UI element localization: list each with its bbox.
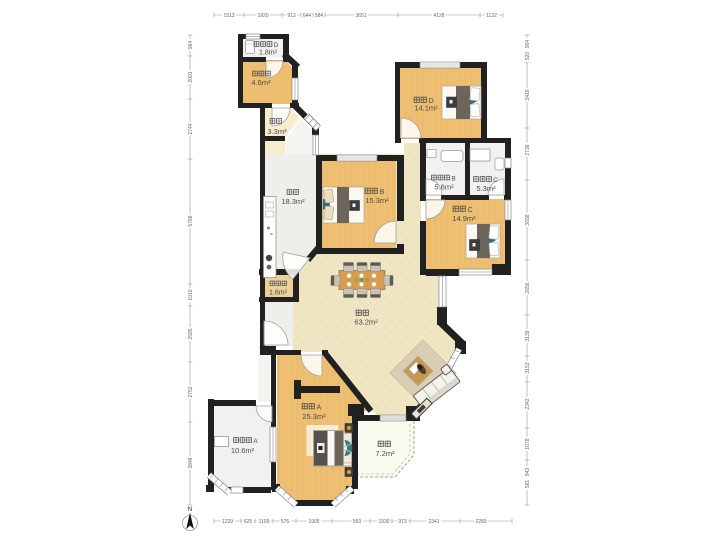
- svg-text:B: B: [451, 175, 455, 182]
- svg-text:563: 563: [353, 519, 362, 525]
- svg-text:584: 584: [315, 13, 324, 19]
- svg-text:1109: 1109: [259, 519, 270, 525]
- svg-text:5.3m²: 5.3m²: [476, 184, 496, 193]
- svg-text:964: 964: [188, 41, 194, 50]
- svg-text:2656: 2656: [525, 282, 531, 293]
- svg-text:4128: 4128: [433, 13, 444, 19]
- svg-text:576: 576: [281, 519, 290, 525]
- svg-text:3419: 3419: [525, 89, 531, 100]
- svg-text:10.6m²: 10.6m²: [231, 446, 255, 455]
- svg-text:5788: 5788: [188, 215, 194, 226]
- svg-text:5.6m²: 5.6m²: [434, 183, 454, 192]
- svg-text:3153: 3153: [525, 362, 531, 373]
- svg-text:N: N: [188, 506, 193, 513]
- svg-text:2744: 2744: [188, 123, 194, 134]
- svg-text:C: C: [467, 207, 472, 214]
- svg-text:913: 913: [287, 13, 296, 19]
- svg-text:14.1m²: 14.1m²: [414, 104, 438, 113]
- svg-text:A: A: [317, 404, 322, 411]
- svg-text:1920: 1920: [257, 13, 268, 19]
- svg-text:943: 943: [525, 468, 531, 477]
- svg-text:B: B: [380, 189, 385, 196]
- svg-text:2752: 2752: [188, 386, 194, 397]
- svg-text:1010: 1010: [188, 289, 194, 300]
- svg-text:1678: 1678: [525, 438, 531, 449]
- svg-text:2738: 2738: [525, 144, 531, 155]
- svg-text:2001: 2001: [188, 71, 194, 82]
- svg-text:1229: 1229: [222, 519, 233, 525]
- svg-text:1132: 1132: [486, 13, 497, 19]
- svg-text:2595: 2595: [188, 328, 194, 339]
- svg-text:581: 581: [525, 480, 531, 489]
- svg-text:644: 644: [303, 13, 312, 19]
- svg-text:14.9m²: 14.9m²: [452, 214, 476, 223]
- svg-text:973: 973: [398, 519, 407, 525]
- svg-text:25.3m²: 25.3m²: [302, 412, 326, 421]
- svg-text:2289: 2289: [475, 519, 486, 525]
- svg-text:3139: 3139: [525, 330, 531, 341]
- svg-text:1905: 1905: [308, 519, 319, 525]
- svg-text:625: 625: [244, 519, 253, 525]
- svg-text:2341: 2341: [428, 519, 439, 525]
- svg-text:3848: 3848: [188, 457, 194, 468]
- svg-text:4.6m²: 4.6m²: [251, 78, 271, 87]
- svg-text:1513: 1513: [223, 13, 234, 19]
- svg-text:964: 964: [525, 40, 531, 49]
- svg-text:C: C: [493, 177, 498, 184]
- svg-text:18.3m²: 18.3m²: [281, 197, 305, 206]
- svg-text:1930: 1930: [378, 519, 389, 525]
- svg-text:1.8m²: 1.8m²: [259, 50, 278, 57]
- svg-text:7.2m²: 7.2m²: [375, 449, 395, 458]
- svg-text:1.6m²: 1.6m²: [269, 290, 288, 297]
- svg-text:520: 520: [525, 52, 531, 61]
- svg-text:63.2m²: 63.2m²: [354, 317, 378, 326]
- svg-text:3651: 3651: [355, 13, 366, 19]
- svg-text:3.3m²: 3.3m²: [267, 127, 287, 136]
- svg-text:D: D: [274, 42, 279, 49]
- svg-text:15.3m²: 15.3m²: [365, 196, 389, 205]
- svg-text:2342: 2342: [525, 398, 531, 409]
- svg-text:A: A: [253, 438, 258, 445]
- svg-text:3658: 3658: [525, 214, 531, 225]
